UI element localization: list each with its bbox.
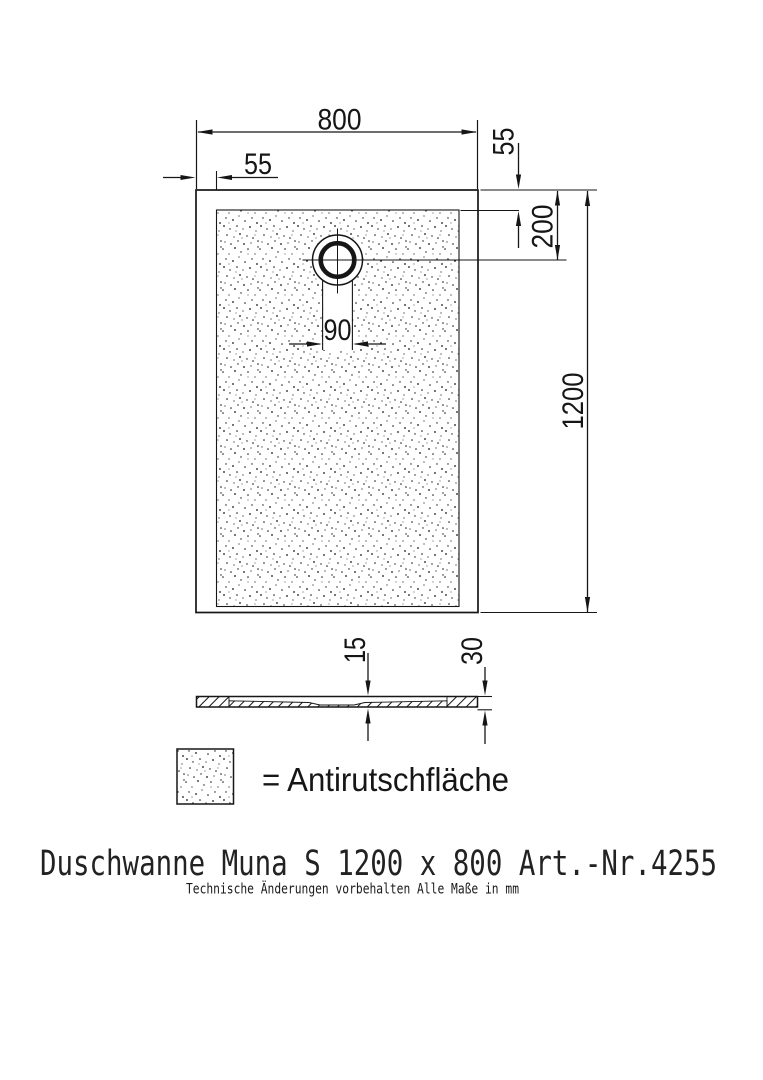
section-left-rim <box>197 697 230 708</box>
arrowhead <box>462 129 478 134</box>
technical-drawing-sheet: 800 55 55 200 1200 <box>0 0 763 1080</box>
arrowhead <box>197 129 213 134</box>
dim-floor-15: 15 <box>339 637 372 741</box>
arrowhead <box>217 175 232 180</box>
arrowhead <box>482 711 487 726</box>
arrowhead <box>482 681 487 696</box>
arrowhead <box>585 597 590 613</box>
drawing-title: Duschwanne Muna S 1200 x 800 Art.-Nr.425… <box>40 844 717 884</box>
arrowhead <box>365 709 370 724</box>
shower-tray-drawing: 800 55 55 200 1200 <box>0 0 763 1080</box>
legend-antislip-swatch <box>177 749 234 804</box>
arrowhead <box>516 211 521 226</box>
arrowhead <box>555 191 560 206</box>
top-view <box>196 190 566 613</box>
title-block: Duschwanne Muna S 1200 x 800 Art.-Nr.425… <box>40 844 717 898</box>
dim-200-label: 200 <box>527 205 560 249</box>
legend-label: = Antirutschfläche <box>262 761 509 798</box>
dim-edge-30: 30 <box>456 637 489 744</box>
dim-55-left-label: 55 <box>244 148 272 181</box>
dim-drain-offset-200: 200 <box>527 191 561 261</box>
arrowhead <box>516 175 521 190</box>
dim-length-1200: 1200 <box>481 190 598 613</box>
section-view <box>197 697 493 710</box>
dim-width-800: 800 <box>197 104 478 190</box>
arrowhead <box>585 191 590 207</box>
dim-800-label: 800 <box>318 104 362 137</box>
dim-90-label: 90 <box>324 314 352 347</box>
dim-1200-label: 1200 <box>557 373 590 430</box>
section-right-rim <box>447 697 478 708</box>
dim-rim-left-55: 55 <box>163 148 278 190</box>
dim-15-label: 15 <box>339 637 372 663</box>
dim-30-label: 30 <box>456 637 489 665</box>
drawing-subtitle: Technische Änderungen vorbehalten Alle M… <box>186 880 519 898</box>
arrowhead <box>181 175 196 180</box>
arrowhead <box>365 681 370 696</box>
dim-55-top-label: 55 <box>488 128 521 156</box>
legend: = Antirutschfläche <box>177 749 509 804</box>
